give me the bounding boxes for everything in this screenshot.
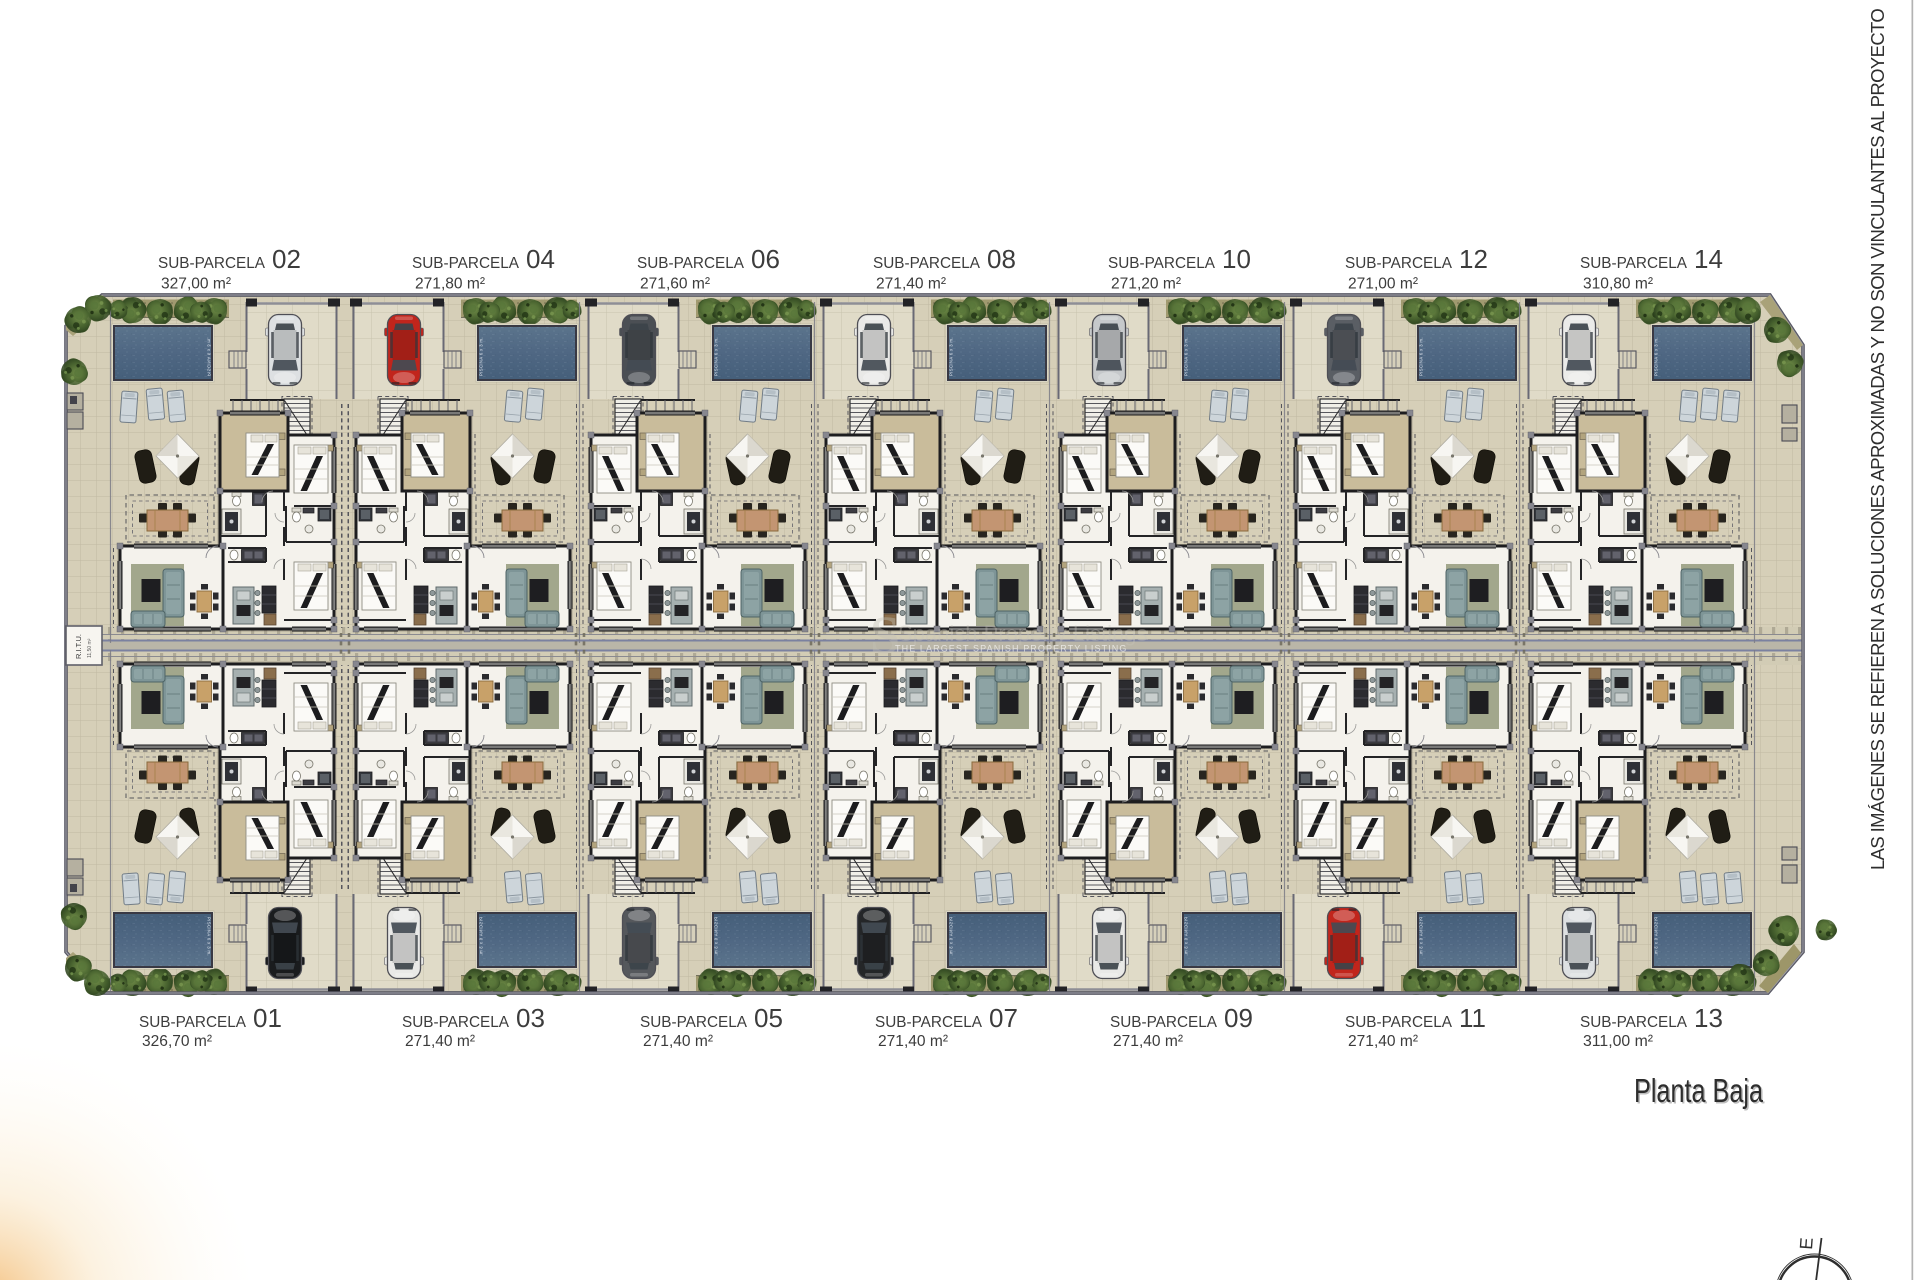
svg-text:E: E bbox=[1796, 1237, 1817, 1250]
svg-text:SUB-PARCELA: SUB-PARCELA bbox=[875, 1014, 982, 1031]
svg-text:SUB-PARCELA: SUB-PARCELA bbox=[873, 255, 980, 272]
svg-text:326,70 m²: 326,70 m² bbox=[142, 1033, 212, 1050]
svg-text:SUB-PARCELA: SUB-PARCELA bbox=[139, 1014, 246, 1031]
svg-text:271,40 m²: 271,40 m² bbox=[1348, 1033, 1418, 1050]
svg-text:07: 07 bbox=[989, 1003, 1018, 1033]
svg-text:271,20 m²: 271,20 m² bbox=[1111, 276, 1181, 293]
svg-text:09: 09 bbox=[1224, 1003, 1253, 1033]
svg-text:271,40 m²: 271,40 m² bbox=[876, 276, 946, 293]
svg-text:12: 12 bbox=[1459, 244, 1488, 274]
svg-text:271,40 m²: 271,40 m² bbox=[1113, 1033, 1183, 1050]
svg-text:SUB-PARCELA: SUB-PARCELA bbox=[1345, 255, 1452, 272]
svg-text:11,50 m²: 11,50 m² bbox=[87, 638, 93, 658]
svg-text:271,40 m²: 271,40 m² bbox=[878, 1033, 948, 1050]
svg-text:271,40 m²: 271,40 m² bbox=[643, 1033, 713, 1050]
svg-text:271,00 m²: 271,00 m² bbox=[1348, 276, 1418, 293]
svg-text:271,60 m²: 271,60 m² bbox=[640, 276, 710, 293]
svg-text:327,00 m²: 327,00 m² bbox=[161, 276, 231, 293]
svg-text:271,40 m²: 271,40 m² bbox=[405, 1033, 475, 1050]
svg-text:SUB-PARCELA: SUB-PARCELA bbox=[1108, 255, 1215, 272]
svg-text:SUB-PARCELA: SUB-PARCELA bbox=[637, 255, 744, 272]
svg-text:02: 02 bbox=[272, 244, 301, 274]
svg-text:05: 05 bbox=[754, 1003, 783, 1033]
svg-text:SUB-PARCELA: SUB-PARCELA bbox=[1580, 1014, 1687, 1031]
svg-text:13: 13 bbox=[1694, 1003, 1723, 1033]
svg-text:310,80 m²: 310,80 m² bbox=[1583, 276, 1653, 293]
svg-text:10: 10 bbox=[1222, 244, 1251, 274]
svg-text:SUB-PARCELA: SUB-PARCELA bbox=[1580, 255, 1687, 272]
svg-text:03: 03 bbox=[516, 1003, 545, 1033]
svg-text:SUB-PARCELA: SUB-PARCELA bbox=[1110, 1014, 1217, 1031]
svg-text:SUB-PARCELA: SUB-PARCELA bbox=[1345, 1014, 1452, 1031]
svg-text:01: 01 bbox=[253, 1003, 282, 1033]
svg-text:11: 11 bbox=[1459, 1003, 1486, 1033]
svg-text:14: 14 bbox=[1694, 244, 1723, 274]
svg-text:THE LARGEST SPANISH PROPERTY L: THE LARGEST SPANISH PROPERTY LISTING bbox=[895, 644, 1128, 654]
svg-text:SUB-PARCELA: SUB-PARCELA bbox=[640, 1014, 747, 1031]
svg-text:06: 06 bbox=[751, 244, 780, 274]
svg-text:271,80 m²: 271,80 m² bbox=[415, 276, 485, 293]
svg-text:R.I.T.U.: R.I.T.U. bbox=[74, 634, 83, 659]
svg-text:08: 08 bbox=[987, 244, 1016, 274]
svg-text:SUB-PARCELA: SUB-PARCELA bbox=[402, 1014, 509, 1031]
svg-text:SUB-PARCELA: SUB-PARCELA bbox=[158, 255, 265, 272]
svg-text:LAS IMÁGENES SE REFIEREN A SOL: LAS IMÁGENES SE REFIEREN A SOLUCIONES AP… bbox=[1867, 8, 1888, 870]
svg-text:04: 04 bbox=[526, 244, 555, 274]
svg-text:Spanish Property Listings: Spanish Property Listings bbox=[898, 621, 1147, 646]
svg-text:SUB-PARCELA: SUB-PARCELA bbox=[412, 255, 519, 272]
svg-text:311,00 m²: 311,00 m² bbox=[1583, 1033, 1653, 1050]
svg-text:Planta Baja: Planta Baja bbox=[1634, 1072, 1763, 1109]
svg-text:S: S bbox=[870, 605, 900, 665]
